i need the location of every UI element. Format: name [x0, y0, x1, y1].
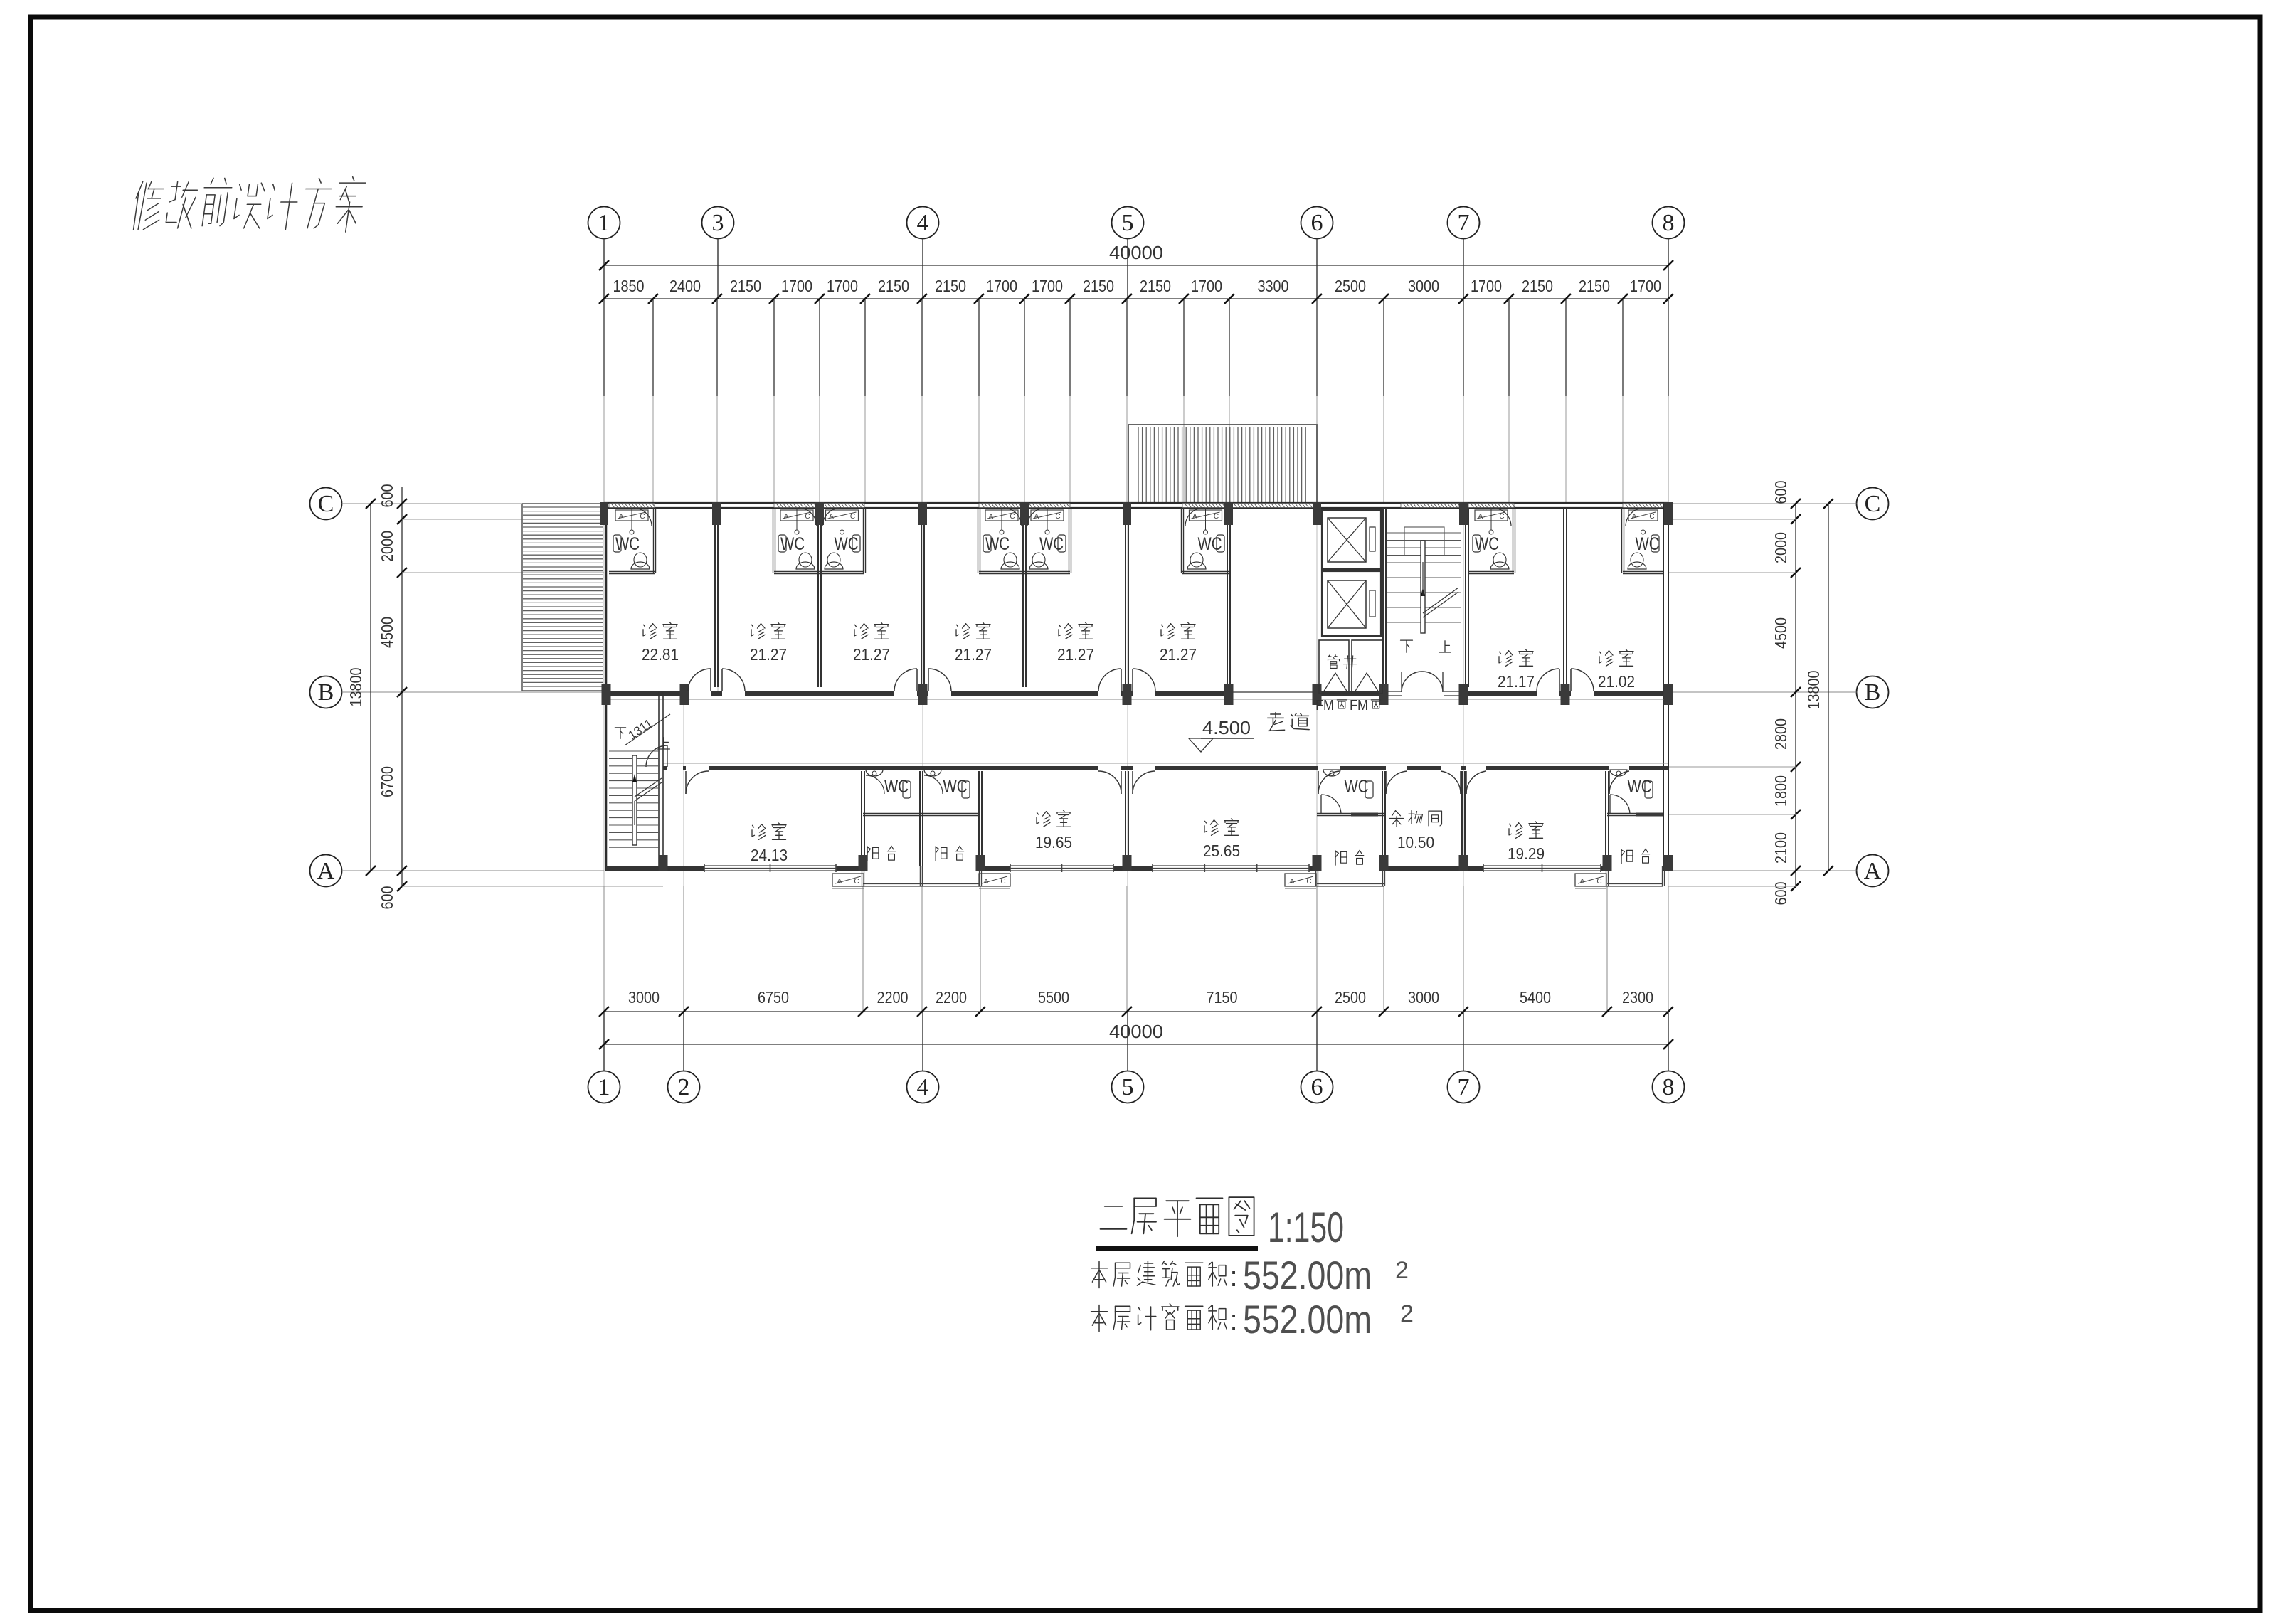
- svg-text::: :: [1229, 1305, 1237, 1336]
- svg-text:1700: 1700: [827, 277, 858, 295]
- svg-text:25.65: 25.65: [1203, 842, 1240, 860]
- svg-text:WC: WC: [1636, 534, 1660, 554]
- svg-text:13800: 13800: [346, 668, 365, 707]
- svg-text:C: C: [854, 878, 859, 886]
- svg-text:21.17: 21.17: [1498, 672, 1535, 691]
- svg-text:21.27: 21.27: [853, 645, 890, 664]
- svg-text:4: 4: [917, 1074, 929, 1100]
- svg-text:2400: 2400: [669, 277, 701, 295]
- svg-text:C: C: [318, 491, 334, 517]
- svg-text:1700: 1700: [1191, 277, 1222, 295]
- svg-text:8: 8: [1663, 210, 1675, 236]
- svg-text:600: 600: [1771, 882, 1790, 906]
- svg-text:2800: 2800: [1771, 718, 1790, 750]
- svg-text:4500: 4500: [1771, 617, 1790, 649]
- svg-text:WC: WC: [985, 534, 1010, 554]
- svg-text:1700: 1700: [1630, 277, 1661, 295]
- svg-text:2150: 2150: [1140, 277, 1171, 295]
- svg-text:A: A: [1632, 513, 1637, 521]
- svg-text:B: B: [1865, 679, 1881, 706]
- svg-text:A: A: [989, 513, 994, 521]
- svg-text:1: 1: [598, 210, 610, 236]
- svg-text:WC: WC: [1628, 777, 1652, 797]
- svg-text:1700: 1700: [781, 277, 812, 295]
- svg-text:552.00m: 552.00m: [1243, 1297, 1372, 1342]
- svg-text:1700: 1700: [1032, 277, 1063, 295]
- svg-text:C: C: [1000, 878, 1005, 886]
- svg-text:21.02: 21.02: [1598, 672, 1635, 691]
- svg-text:2000: 2000: [378, 531, 396, 562]
- svg-text::: :: [1229, 1261, 1237, 1293]
- svg-text:5: 5: [1122, 210, 1134, 236]
- svg-text:3300: 3300: [1258, 277, 1289, 295]
- svg-text:3: 3: [712, 210, 724, 236]
- svg-text:B: B: [318, 679, 334, 706]
- svg-text:C: C: [1499, 513, 1504, 521]
- svg-text:600: 600: [378, 886, 396, 910]
- svg-text:2: 2: [1400, 1300, 1414, 1327]
- svg-text:40000: 40000: [1109, 1021, 1163, 1042]
- svg-text:3000: 3000: [628, 988, 660, 1007]
- svg-text:1: 1: [598, 1074, 610, 1100]
- svg-text:FM: FM: [1315, 698, 1334, 713]
- svg-text:13800: 13800: [1804, 671, 1823, 710]
- svg-text:1850: 1850: [613, 277, 645, 295]
- svg-text:7150: 7150: [1207, 988, 1238, 1007]
- svg-text:4: 4: [917, 210, 929, 236]
- svg-text:1700: 1700: [1471, 277, 1502, 295]
- svg-text:2150: 2150: [935, 277, 966, 295]
- svg-text:5: 5: [1122, 1074, 1134, 1100]
- svg-text:WC: WC: [615, 534, 640, 554]
- svg-text:4500: 4500: [378, 617, 396, 648]
- svg-text:2000: 2000: [1771, 532, 1790, 563]
- svg-text:21.27: 21.27: [1057, 645, 1094, 664]
- svg-text:C: C: [805, 513, 810, 521]
- svg-text:7: 7: [1458, 210, 1470, 236]
- svg-text:5500: 5500: [1038, 988, 1069, 1007]
- svg-text:A: A: [829, 513, 834, 521]
- svg-text:2200: 2200: [936, 988, 967, 1007]
- svg-text:2500: 2500: [1335, 277, 1366, 295]
- svg-text:A: A: [619, 513, 624, 521]
- svg-text:A: A: [1864, 858, 1882, 884]
- svg-text:C: C: [1055, 513, 1060, 521]
- svg-text:22.81: 22.81: [642, 645, 679, 664]
- svg-text:3000: 3000: [1408, 277, 1439, 295]
- svg-text:21.27: 21.27: [1160, 645, 1197, 664]
- svg-text:6750: 6750: [758, 988, 789, 1007]
- svg-text:7: 7: [1458, 1074, 1470, 1100]
- svg-text:2150: 2150: [1522, 277, 1553, 295]
- svg-text:19.65: 19.65: [1035, 833, 1072, 851]
- svg-text:WC: WC: [780, 534, 805, 554]
- svg-text:WC: WC: [1198, 534, 1222, 554]
- svg-text:2: 2: [678, 1074, 690, 1100]
- svg-text:C: C: [1596, 878, 1601, 886]
- svg-text:6: 6: [1311, 1074, 1323, 1100]
- svg-text:2300: 2300: [1622, 988, 1653, 1007]
- svg-text:WC: WC: [1039, 534, 1064, 554]
- svg-text:1:150: 1:150: [1268, 1204, 1344, 1251]
- svg-text:1700: 1700: [986, 277, 1017, 295]
- svg-text:C: C: [1306, 878, 1311, 886]
- svg-text:A: A: [1192, 513, 1197, 521]
- svg-text:WC: WC: [835, 534, 859, 554]
- svg-text:2200: 2200: [877, 988, 909, 1007]
- svg-text:C: C: [850, 513, 855, 521]
- svg-text:C: C: [1649, 513, 1654, 521]
- svg-text:WC: WC: [884, 777, 909, 797]
- svg-text:5400: 5400: [1520, 988, 1551, 1007]
- svg-text:2100: 2100: [1771, 832, 1790, 864]
- svg-text:A: A: [784, 513, 789, 521]
- svg-text:2: 2: [1395, 1257, 1409, 1284]
- svg-text:C: C: [1214, 513, 1219, 521]
- svg-text:A: A: [837, 878, 842, 886]
- svg-text:552.00m: 552.00m: [1243, 1253, 1372, 1297]
- svg-text:WC: WC: [1475, 534, 1499, 554]
- svg-text:21.27: 21.27: [955, 645, 992, 664]
- svg-text:A: A: [1580, 878, 1585, 886]
- svg-text:A: A: [1290, 878, 1295, 886]
- svg-text:A: A: [317, 858, 335, 884]
- svg-text:6: 6: [1311, 210, 1323, 236]
- svg-text:2150: 2150: [1579, 277, 1610, 295]
- svg-text:C: C: [640, 513, 645, 521]
- svg-text:2150: 2150: [1083, 277, 1114, 295]
- svg-text:1800: 1800: [1771, 775, 1790, 807]
- svg-text:600: 600: [1771, 481, 1790, 504]
- svg-text:600: 600: [378, 484, 396, 508]
- svg-text:10.50: 10.50: [1397, 833, 1434, 851]
- svg-text:C: C: [1865, 491, 1881, 517]
- svg-text:21.27: 21.27: [750, 645, 787, 664]
- svg-text:4.500: 4.500: [1202, 717, 1251, 738]
- svg-text:2150: 2150: [878, 277, 909, 295]
- svg-text:C: C: [1010, 513, 1015, 521]
- svg-text:A: A: [1478, 513, 1483, 521]
- svg-text:6700: 6700: [378, 766, 396, 797]
- svg-text:40000: 40000: [1109, 242, 1163, 263]
- svg-text:A: A: [1034, 513, 1039, 521]
- svg-text:WC: WC: [943, 777, 968, 797]
- svg-text:3000: 3000: [1408, 988, 1439, 1007]
- svg-text:8: 8: [1663, 1074, 1675, 1100]
- svg-text:19.29: 19.29: [1508, 844, 1545, 863]
- svg-text:2500: 2500: [1335, 988, 1366, 1007]
- svg-text:A: A: [984, 878, 989, 886]
- svg-text:24.13: 24.13: [751, 846, 788, 864]
- svg-text:2150: 2150: [730, 277, 761, 295]
- svg-text:FM: FM: [1350, 698, 1368, 713]
